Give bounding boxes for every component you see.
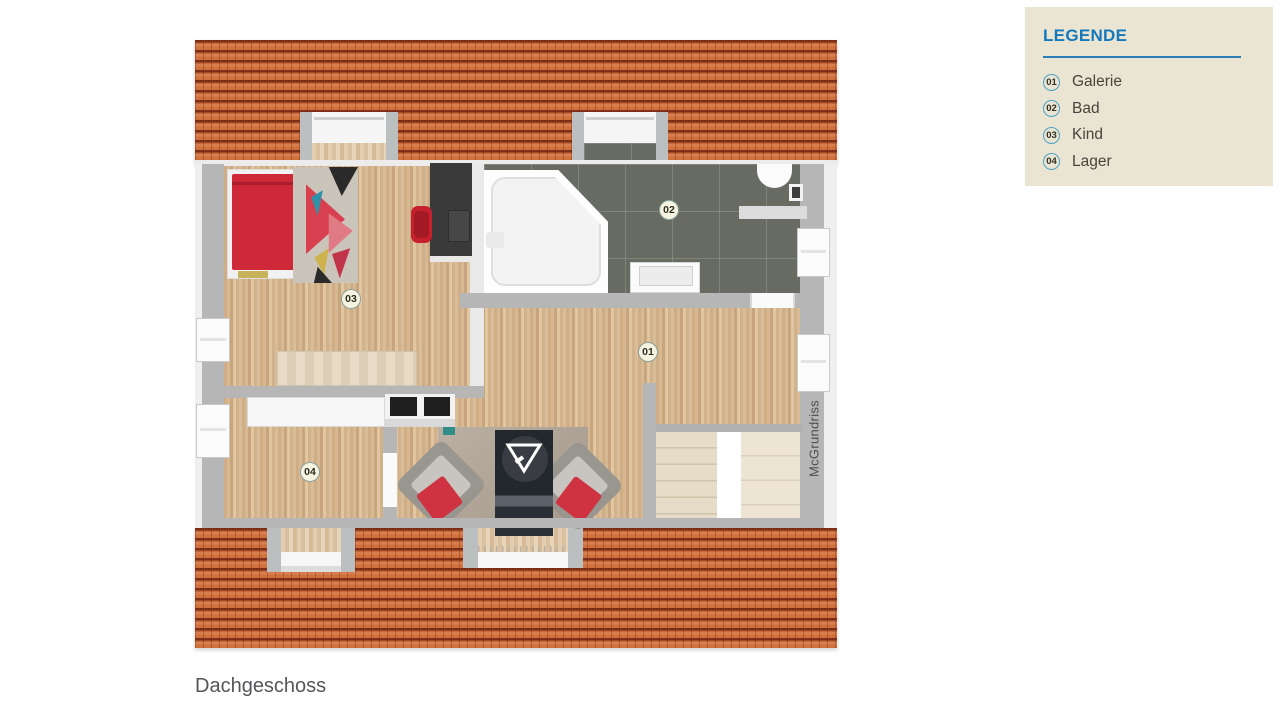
legend-divider bbox=[1043, 56, 1241, 58]
dormer-window-bad bbox=[572, 112, 668, 165]
room-label-kind: 03 bbox=[341, 289, 361, 309]
room-label-galerie: 01 bbox=[638, 342, 658, 362]
legend-item-label: Bad bbox=[1072, 100, 1100, 118]
window-left-2 bbox=[196, 404, 230, 458]
bathroom-wall-cabinet bbox=[789, 184, 803, 201]
stairs-right-flight bbox=[741, 432, 800, 528]
dormer-window-lager bbox=[267, 528, 355, 572]
vanity-sink bbox=[630, 262, 700, 293]
legend-item-lager: 04 Lager bbox=[1043, 149, 1259, 176]
wall-kind-bad bbox=[470, 164, 484, 392]
desk bbox=[430, 163, 472, 256]
window-left-1 bbox=[196, 318, 230, 362]
window-right-1 bbox=[797, 228, 830, 277]
floorplan-page: 01 02 03 04 McGrundriss LEGENDE 01 Galer… bbox=[0, 0, 1280, 720]
legend-item-label: Kind bbox=[1072, 126, 1103, 144]
stairs-ledge bbox=[656, 424, 802, 432]
legend-item-label: Lager bbox=[1072, 153, 1112, 171]
legend-item-kind: 03 Kind bbox=[1043, 122, 1259, 149]
room-label-lager: 04 bbox=[300, 462, 320, 482]
legend-num-badge: 04 bbox=[1043, 153, 1060, 170]
dormer-window-kind bbox=[300, 112, 398, 165]
legend-num-badge: 02 bbox=[1043, 100, 1060, 117]
legend-item-label: Galerie bbox=[1072, 73, 1122, 91]
roof-top bbox=[195, 40, 837, 164]
counter-dark-squares bbox=[385, 394, 455, 427]
watermark-text: McGrundriss bbox=[807, 359, 822, 519]
bathroom-door bbox=[750, 293, 795, 308]
rug-kind bbox=[293, 167, 358, 283]
floor-caption: Dachgeschoss bbox=[195, 675, 326, 698]
stairs-left-flight bbox=[656, 432, 717, 528]
dresser-kind bbox=[277, 351, 417, 386]
legend-num-badge: 03 bbox=[1043, 127, 1060, 144]
legend-item-bad: 02 Bad bbox=[1043, 96, 1259, 123]
legend-num-badge: 01 bbox=[1043, 74, 1060, 91]
table-logo-icon bbox=[505, 442, 543, 474]
lager-door bbox=[383, 453, 397, 507]
legend-title: LEGENDE bbox=[1043, 26, 1127, 46]
wall-stairs bbox=[643, 383, 656, 520]
room-label-bad: 02 bbox=[659, 200, 679, 220]
stairs-gap bbox=[717, 432, 741, 528]
wall-bottom bbox=[203, 518, 823, 528]
desk-chair bbox=[411, 206, 432, 243]
sideboard-lager bbox=[247, 397, 385, 427]
legend-panel: LEGENDE 01 Galerie 02 Bad 03 Kind 04 Lag… bbox=[1025, 7, 1273, 186]
bathroom-partition bbox=[739, 206, 807, 219]
legend-item-galerie: 01 Galerie bbox=[1043, 69, 1259, 96]
